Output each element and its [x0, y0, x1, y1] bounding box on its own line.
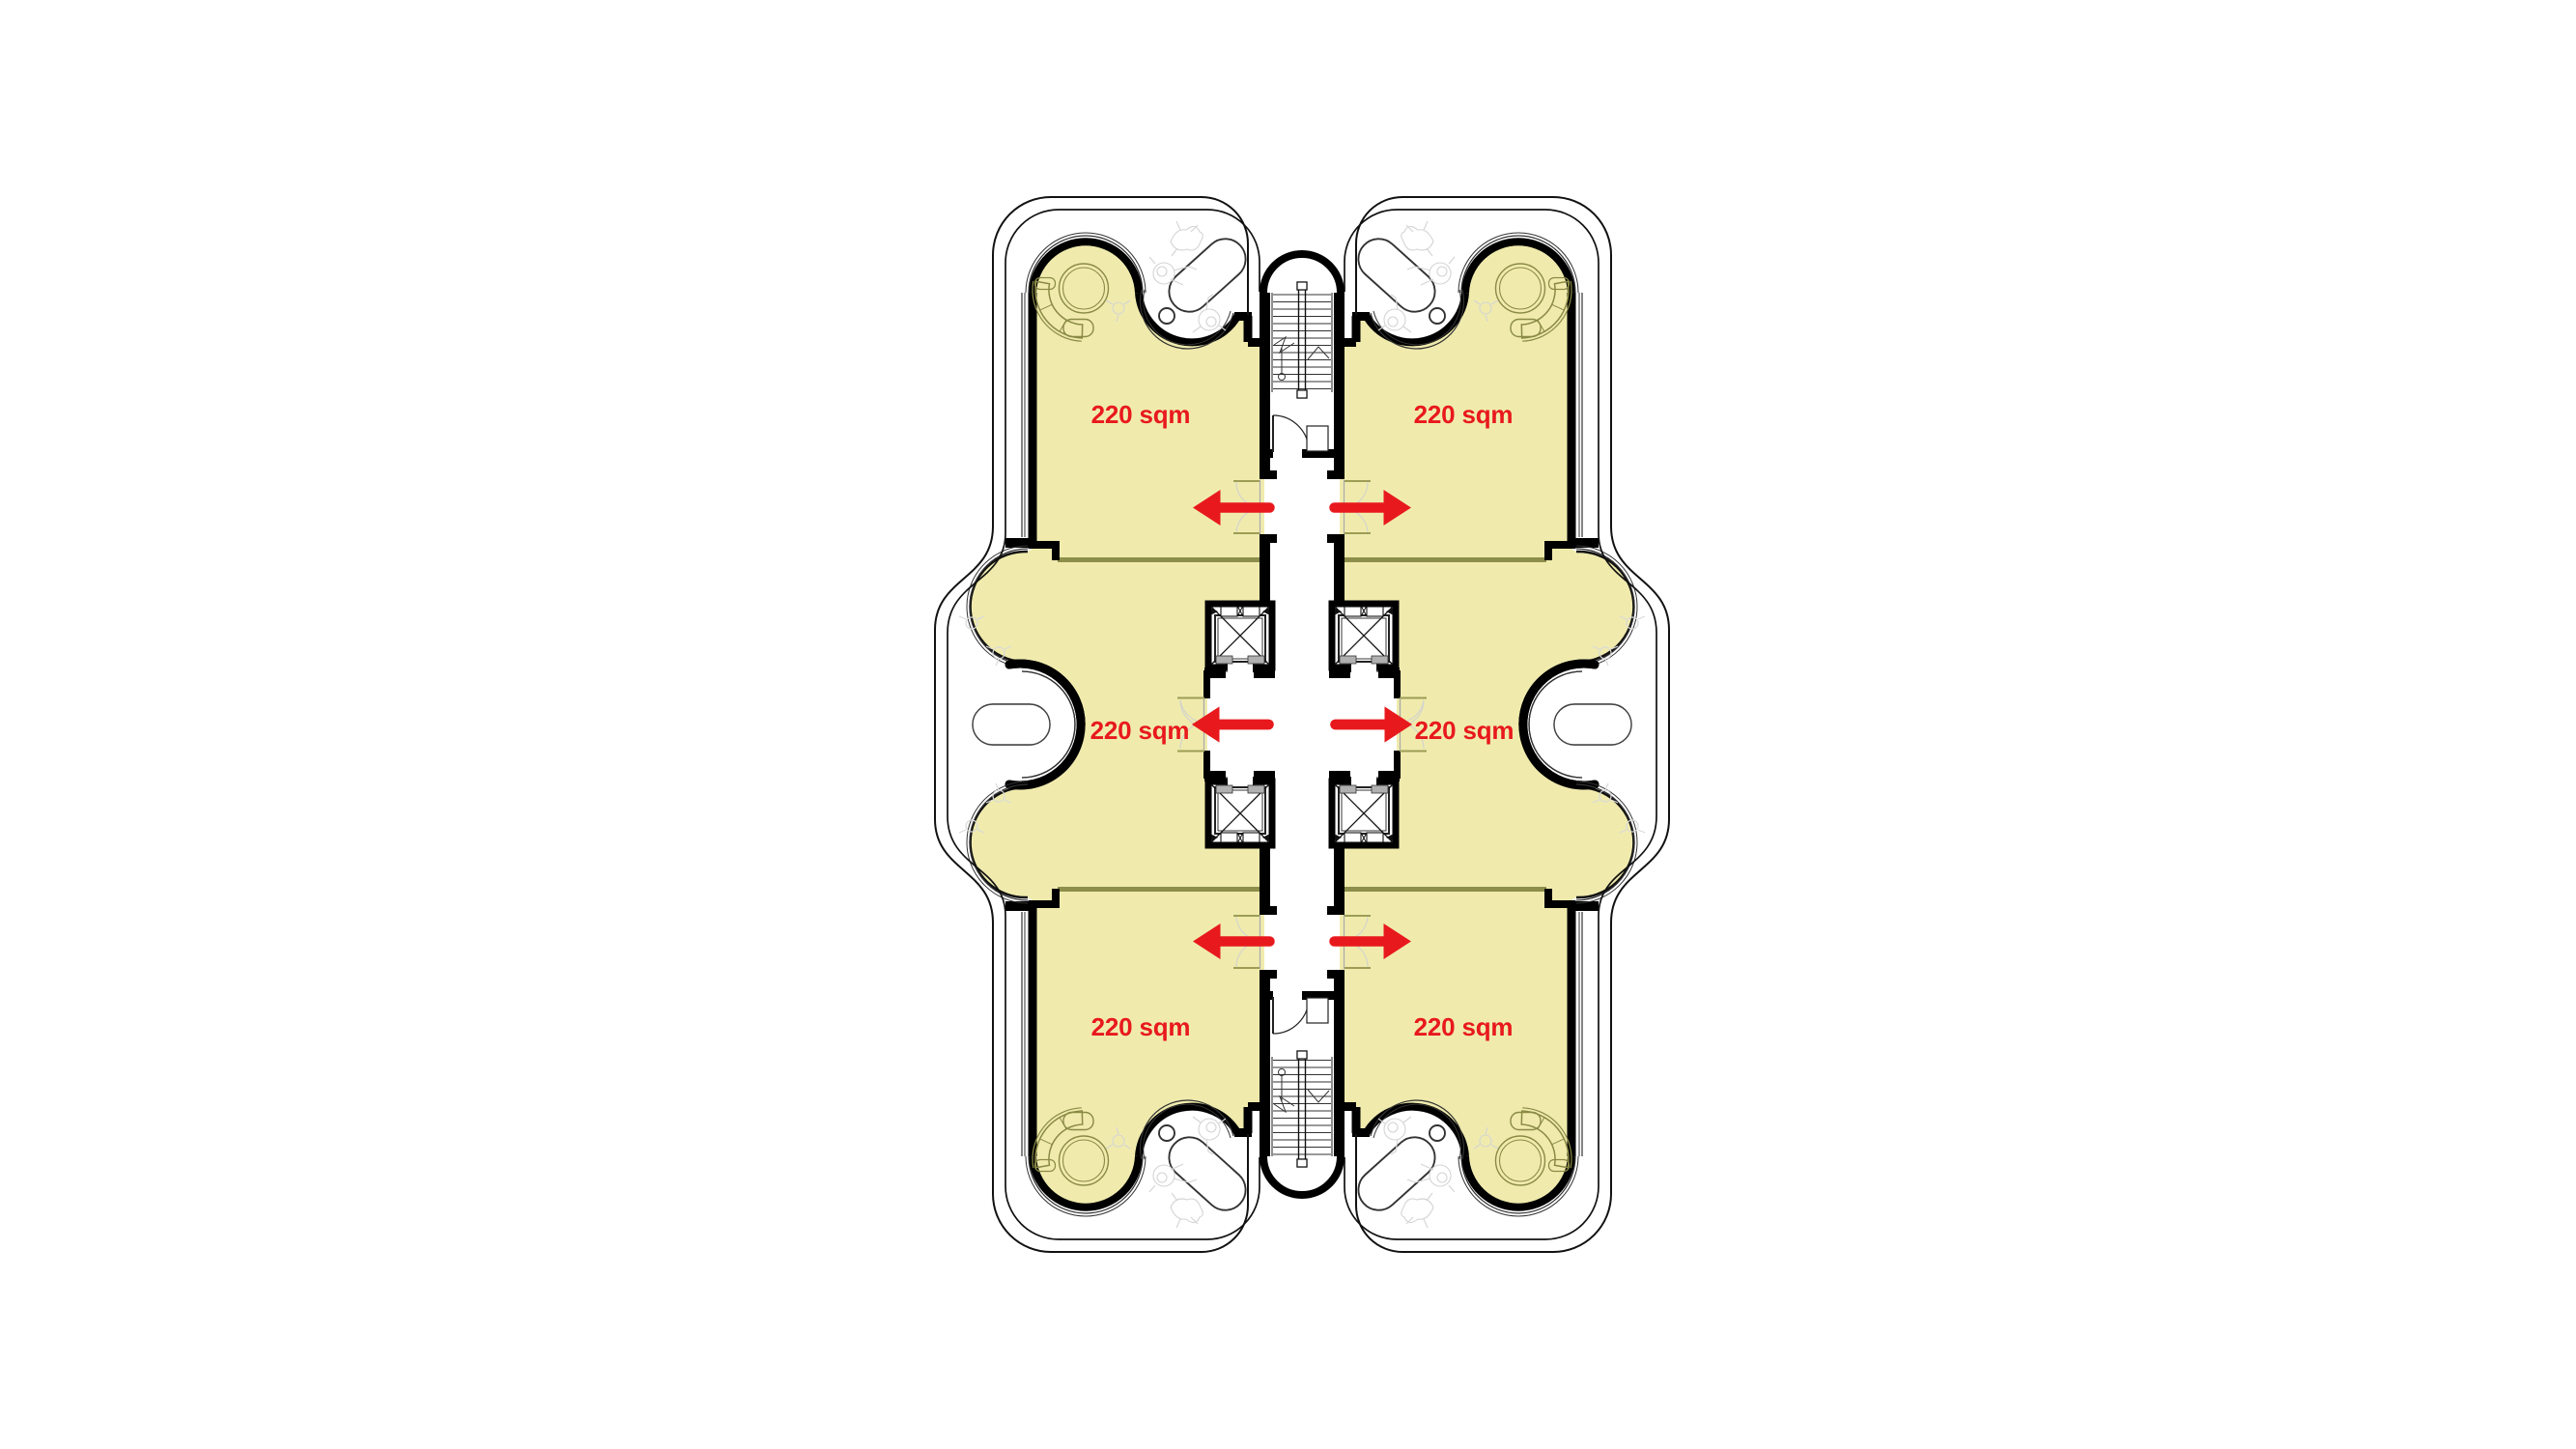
svg-text:220 sqm: 220 sqm	[1091, 400, 1191, 429]
svg-text:220 sqm: 220 sqm	[1414, 1012, 1514, 1041]
svg-text:220 sqm: 220 sqm	[1091, 1012, 1191, 1041]
svg-text:220 sqm: 220 sqm	[1414, 400, 1514, 429]
svg-text:220 sqm: 220 sqm	[1415, 716, 1514, 745]
svg-text:220 sqm: 220 sqm	[1090, 716, 1190, 745]
